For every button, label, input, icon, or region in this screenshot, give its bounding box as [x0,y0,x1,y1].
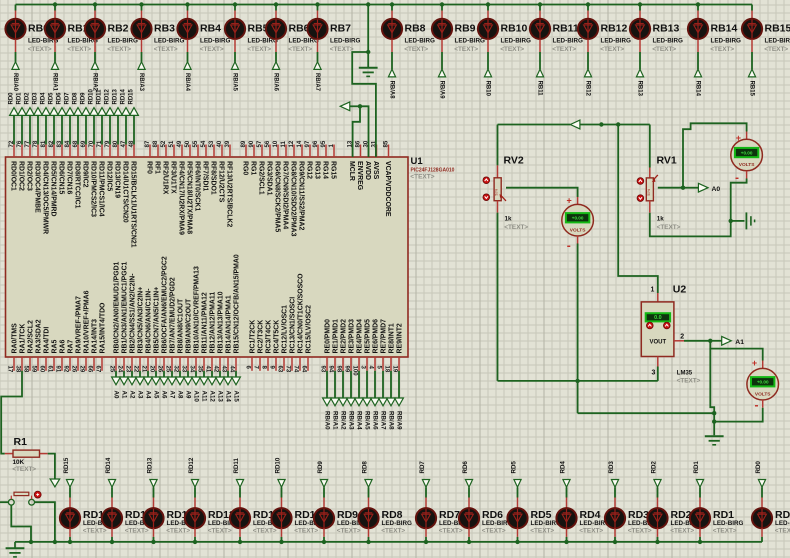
svg-text:ENVREG: ENVREG [356,161,363,190]
svg-text:RE2/PMD2: RE2/PMD2 [340,319,347,354]
svg-text:RB8: RB8 [405,22,426,34]
svg-text:14: 14 [296,140,303,147]
svg-text:42: 42 [213,366,220,373]
svg-text:78: 78 [32,140,39,147]
svg-text:<TEXT>: <TEXT> [657,224,681,231]
svg-text:A8: A8 [177,391,184,399]
svg-text:RF5/CN18/U2TX/PMA8: RF5/CN18/U2TX/PMA8 [186,161,193,234]
svg-text:24: 24 [117,366,124,373]
svg-text:RB/A3: RB/A3 [138,73,144,92]
svg-text:RA9/VREF-/PMA7: RA9/VREF-/PMA7 [75,296,82,354]
svg-text:RB2: RB2 [108,22,129,34]
svg-text:RD8/RTCC/IC1: RD8/RTCC/IC1 [74,161,81,209]
svg-text:<TEXT>: <TEXT> [410,174,434,181]
svg-text:25: 25 [165,366,172,373]
svg-text:LED-BIRG: LED-BIRG [108,37,139,44]
svg-text:67: 67 [95,366,102,373]
svg-text:79: 79 [104,140,111,147]
svg-text:50: 50 [184,140,191,147]
svg-text:VCAP/VDDCORE: VCAP/VDDCORE [384,161,391,217]
svg-text:+: + [567,196,572,206]
svg-text:<TEXT>: <TEXT> [652,46,676,53]
svg-text:RB/A8: RB/A8 [389,81,395,100]
svg-text:RV2: RV2 [504,155,524,167]
svg-text:RD10: RD10 [89,88,95,104]
svg-text:54: 54 [200,140,207,147]
svg-text:<TEXT>: <TEXT> [294,528,318,535]
svg-text:RC12/LV/OSC1: RC12/LV/OSC1 [281,305,288,354]
svg-text:RD0: RD0 [775,509,790,521]
svg-text:RF7/SDI1: RF7/SDI1 [202,161,209,191]
svg-text:20: 20 [149,366,156,373]
svg-text:RD10: RD10 [275,457,282,473]
svg-text:RB/A6: RB/A6 [273,73,279,92]
svg-text:RD5/CN14/PMRD: RD5/CN14/PMRD [50,161,57,217]
svg-text:96: 96 [312,140,319,147]
svg-text:RG6/CN8/SCK2/PMA5: RG6/CN8/SCK2/PMA5 [274,161,281,232]
svg-text:60: 60 [39,366,46,373]
svg-text:RF13/U2RTS/BCLK2: RF13/U2RTS/BCLK2 [226,161,233,227]
svg-text:21: 21 [141,366,148,373]
svg-text:<TEXT>: <TEXT> [710,46,734,53]
svg-text:47: 47 [120,140,127,147]
svg-text:<TEXT>: <TEXT> [125,528,149,535]
svg-text:-: - [755,398,759,412]
svg-text:+0.00: +0.00 [572,216,584,221]
svg-text:RB14/AN14/PMA1: RB14/AN14/PMA1 [225,295,232,353]
svg-text:RE7/PMD7: RE7/PMD7 [380,319,387,354]
svg-text:RD2: RD2 [651,461,658,474]
svg-text:<TEXT>: <TEXT> [208,528,232,535]
svg-text:83: 83 [56,140,63,147]
svg-text:95: 95 [320,140,327,147]
svg-text:LED-BIRG: LED-BIRG [775,520,790,527]
svg-text:RF6/INT0/SCK1: RF6/INT0/SCK1 [194,161,201,211]
svg-text:RG7/CN9/SDI2/PMA4: RG7/CN9/SDI2/PMA4 [282,161,289,229]
svg-text:RD0: RD0 [9,92,15,105]
svg-text:RB4/CN6/AN4/C1IN-: RB4/CN6/AN4/C1IN- [145,288,152,354]
svg-text:RG2/SCL1: RG2/SCL1 [258,161,265,195]
svg-text:RF1: RF1 [154,161,161,174]
svg-text:1k: 1k [505,215,513,222]
svg-text:LED-BIRG: LED-BIRG [653,37,684,44]
svg-text:LED-BIRG: LED-BIRG [553,37,584,44]
svg-text:50%: 50% [495,189,499,196]
svg-text:88: 88 [152,140,159,147]
svg-text:RA2/SCL2: RA2/SCL2 [27,320,34,353]
svg-text:RB6/OCFA/AN6/EMUC2/PGC2: RB6/OCFA/AN6/EMUC2/PGC2 [161,256,168,353]
svg-text:RD7: RD7 [439,509,460,521]
svg-text:<TEXT>: <TEXT> [288,46,312,53]
svg-text:RD3: RD3 [33,92,39,105]
svg-text:RE0/PMD0: RE0/PMD0 [324,319,331,354]
svg-text:RD12/IC5: RD12/IC5 [106,161,113,191]
svg-text:RB7: RB7 [330,22,351,34]
svg-text:RD7/CN16: RD7/CN16 [66,161,73,194]
svg-text:RB13/AN13/PMA10: RB13/AN13/PMA10 [217,291,224,353]
svg-text:RB14: RB14 [711,22,738,34]
svg-text:RG9/CN11/SS2/PMA2: RG9/CN11/SS2/PMA2 [298,161,305,230]
svg-text:<TEXT>: <TEXT> [200,46,224,53]
svg-text:VOUT: VOUT [649,339,666,345]
svg-text:RD4: RD4 [580,509,601,521]
svg-text:RA3/SDA2: RA3/SDA2 [35,319,42,353]
svg-text:RE4/PMD4: RE4/PMD4 [356,319,363,354]
svg-text:RB/A0: RB/A0 [324,411,331,430]
svg-text:90: 90 [248,140,255,147]
svg-text:99: 99 [344,366,351,373]
svg-text:<TEXT>: <TEXT> [713,528,737,535]
svg-text:RD14: RD14 [121,88,127,104]
svg-text:61: 61 [47,366,54,373]
svg-text:RE8/INT1: RE8/INT1 [388,323,395,353]
svg-text:82: 82 [48,140,55,147]
svg-text:RB13: RB13 [637,81,643,97]
svg-text:A4: A4 [145,391,152,399]
svg-text:RD4/CN13/OC5/PMWR: RD4/CN13/OC5/PMWR [42,161,49,234]
svg-text:22: 22 [133,366,140,373]
svg-text:+0.00: +0.00 [757,380,769,385]
svg-text:RB/A3: RB/A3 [348,411,355,430]
svg-text:<TEXT>: <TEXT> [579,528,603,535]
svg-text:LED-BIRG: LED-BIRG [501,37,532,44]
svg-text:1k: 1k [657,215,665,222]
svg-text:<TEXT>: <TEXT> [482,528,506,535]
svg-text:RF4/CN17/U2RX/PMA9: RF4/CN17/U2RX/PMA9 [178,161,185,235]
svg-text:LED-BIRG: LED-BIRG [455,37,486,44]
svg-text:RG14: RG14 [322,161,329,179]
svg-text:<TEXT>: <TEXT> [600,46,624,53]
svg-text:RB/A9: RB/A9 [396,411,403,430]
svg-text:RD7: RD7 [419,461,426,474]
svg-text:RD8: RD8 [362,461,369,474]
svg-text:RD10/PMCS2/IC3: RD10/PMCS2/IC3 [90,161,97,217]
svg-text:26: 26 [157,366,164,373]
svg-text:59: 59 [31,366,38,373]
svg-text:LED-BIRG: LED-BIRG [601,37,632,44]
svg-text:64: 64 [301,366,308,373]
svg-text:RD15/BCLK1/U1RTS/CN21: RD15/BCLK1/U1RTS/CN21 [130,161,137,248]
svg-text:34: 34 [189,366,196,373]
svg-text:RB10/AN10/CVREF/PMA13: RB10/AN10/CVREF/PMA13 [193,266,200,353]
svg-text:RB/A7: RB/A7 [314,73,320,92]
svg-text:RB5/CN7/AN5/C1IN+: RB5/CN7/AN5/C1IN+ [153,287,160,354]
svg-text:<TEXT>: <TEXT> [337,528,361,535]
svg-text:RB15/CN12/OCFB/AN15/PMA0: RB15/CN12/OCFB/AN15/PMA0 [233,254,240,353]
svg-text:<TEXT>: <TEXT> [530,528,554,535]
svg-text:RB12: RB12 [585,81,591,97]
svg-text:RD15: RD15 [129,88,135,104]
svg-text:RB4: RB4 [200,22,221,34]
svg-text:A12: A12 [209,391,216,403]
svg-text:<TEXT>: <TEXT> [500,46,524,53]
svg-text:2: 2 [680,333,684,340]
svg-text:RB9: RB9 [455,22,476,34]
svg-text:56: 56 [264,140,271,147]
svg-text:RD11: RD11 [97,89,103,105]
svg-text:RB15: RB15 [765,22,790,34]
svg-text:RC4/T5CK: RC4/T5CK [273,320,280,354]
svg-text:A0: A0 [712,186,721,193]
svg-text:AVSS: AVSS [372,161,379,180]
svg-text:RB11: RB11 [553,22,579,34]
svg-text:RB3: RB3 [154,22,175,34]
svg-text:RA5: RA5 [51,340,58,354]
svg-text:<TEXT>: <TEXT> [670,528,694,535]
svg-text:RD13: RD13 [113,88,119,104]
svg-text:R1: R1 [14,436,28,448]
svg-text:-: - [567,239,571,253]
svg-text:<TEXT>: <TEXT> [12,466,36,473]
svg-text:U1: U1 [411,156,424,167]
svg-text:55: 55 [192,140,199,147]
svg-text:86: 86 [354,140,361,147]
svg-text:RC14/CN0/T1CK/SOSCO: RC14/CN0/T1CK/SOSCO [297,273,304,354]
svg-text:RA14/INT3: RA14/INT3 [91,319,98,354]
svg-text:63: 63 [277,366,284,373]
svg-text:RD9/IC2: RD9/IC2 [82,161,89,188]
svg-text:+0.00: +0.00 [741,150,753,155]
svg-text:<TEXT>: <TEXT> [330,46,354,53]
svg-text:97: 97 [304,140,311,147]
svg-text:92: 92 [63,366,70,373]
svg-text:98: 98 [336,366,343,373]
svg-text:<TEXT>: <TEXT> [107,46,131,53]
svg-text:0.0: 0.0 [654,315,662,321]
svg-text:RD2: RD2 [25,92,31,105]
svg-text:<TEXT>: <TEXT> [253,528,277,535]
svg-text:RB/A1: RB/A1 [52,73,58,92]
svg-text:RB1/CN3/AN1/EMUC1/PGC1: RB1/CN3/AN1/EMUC1/PGC1 [121,261,128,353]
svg-text:1: 1 [651,287,655,294]
svg-text:57: 57 [256,140,263,147]
svg-text:1: 1 [328,144,335,148]
svg-text:RD1/OC2: RD1/OC2 [18,161,25,191]
svg-text:RB9/AN9/C2OUT: RB9/AN9/C2OUT [185,298,192,354]
svg-text:RG3/SDA1: RG3/SDA1 [266,161,273,196]
svg-text:A6: A6 [161,391,168,399]
svg-text:RD3: RD3 [628,509,649,521]
svg-text:66: 66 [87,366,94,373]
svg-text:71: 71 [96,140,103,147]
svg-text:A5: A5 [153,391,160,399]
svg-text:17: 17 [7,366,14,373]
svg-text:RB0/CN2/AN0/EMUD1/PGD1: RB0/CN2/AN0/EMUD1/PGD1 [113,261,120,353]
svg-text:LED-BIRG: LED-BIRG [154,37,185,44]
svg-text:<TEXT>: <TEXT> [552,46,576,53]
svg-text:10: 10 [272,140,279,147]
svg-text:RC2/T3CK: RC2/T3CK [257,320,264,354]
svg-text:48: 48 [128,140,135,147]
svg-text:RD8: RD8 [73,92,79,105]
svg-text:RG13: RG13 [314,161,321,179]
svg-text:RG8/CN10/SDO2/PMA3: RG8/CN10/SDO2/PMA3 [290,161,297,237]
svg-text:84: 84 [64,140,71,147]
svg-text:RV1: RV1 [657,155,677,167]
svg-text:RB14: RB14 [695,81,701,97]
svg-text:RC1/T2CK: RC1/T2CK [249,320,256,354]
svg-text:RD7: RD7 [65,92,71,105]
svg-text:100: 100 [352,366,359,377]
svg-text:RB13: RB13 [653,22,680,34]
svg-text:RB12: RB12 [601,22,628,34]
svg-text:72: 72 [8,140,15,147]
svg-text:LED-BIRG: LED-BIRG [382,520,413,527]
svg-text:RA4/TDI: RA4/TDI [43,327,50,354]
svg-text:70: 70 [88,140,95,147]
svg-text:<TEXT>: <TEXT> [454,46,478,53]
svg-text:RG1: RG1 [250,161,257,175]
svg-text:A9: A9 [185,391,192,399]
svg-text:33: 33 [181,366,188,373]
svg-text:41: 41 [205,366,212,373]
svg-text:89: 89 [240,140,247,147]
svg-text:RD2: RD2 [671,509,692,521]
svg-text:<TEXT>: <TEXT> [504,224,528,231]
svg-text:81: 81 [40,140,47,147]
svg-text:58: 58 [23,366,30,373]
svg-text:LED-BIRG: LED-BIRG [765,37,790,44]
svg-text:RB10: RB10 [485,81,491,97]
svg-text:RG0: RG0 [242,161,249,175]
svg-text:91: 91 [55,366,62,373]
svg-text:A3: A3 [137,391,144,399]
svg-text:RF2/U1RX: RF2/U1RX [162,161,169,195]
svg-text:10K: 10K [13,459,25,466]
svg-text:RD6: RD6 [462,461,469,474]
svg-text:RB15: RB15 [749,81,755,97]
svg-text:19: 19 [392,366,399,373]
svg-text:<TEXT>: <TEXT> [764,46,788,53]
svg-text:<TEXT>: <TEXT> [439,528,463,535]
svg-text:LED-BIRG: LED-BIRG [330,37,361,44]
svg-text:77: 77 [24,140,31,147]
svg-text:RE5/PMD5: RE5/PMD5 [364,319,371,354]
svg-text:RD13: RD13 [147,457,154,473]
svg-text:<TEXT>: <TEXT> [154,46,178,53]
svg-text:RD0/OC1: RD0/OC1 [10,161,17,191]
svg-text:39: 39 [224,140,231,147]
svg-text:50%: 50% [647,189,651,196]
svg-text:RE3/PMD3: RE3/PMD3 [348,319,355,354]
svg-text:RD8: RD8 [382,509,403,521]
svg-text:A10: A10 [193,391,200,403]
svg-text:85: 85 [382,140,389,147]
svg-text:44: 44 [229,366,236,373]
svg-text:RB3/CN5/AN3/C2IN+: RB3/CN5/AN3/C2IN+ [137,287,144,354]
svg-text:RD4: RD4 [41,92,47,105]
svg-text:RA0/TMS: RA0/TMS [11,323,18,354]
svg-text:52: 52 [160,140,167,147]
svg-text:VOLTS: VOLTS [755,391,771,397]
svg-text:RB8/AN8/C1OUT: RB8/AN8/C1OUT [177,298,184,354]
svg-text:RD1: RD1 [713,509,734,521]
svg-text:LED-BIRG: LED-BIRG [200,37,231,44]
svg-text:RA7: RA7 [67,340,74,354]
svg-text:29: 29 [79,366,86,373]
svg-text:32: 32 [173,366,180,373]
svg-text:RD3/OC4/PMBE: RD3/OC4/PMBE [34,161,41,213]
svg-text:RB12/AN12/PMA11: RB12/AN12/PMA11 [209,292,216,354]
svg-text:RD6/CN15: RD6/CN15 [58,161,65,194]
svg-text:12: 12 [288,140,295,147]
svg-text:RD9: RD9 [81,92,87,105]
svg-text:87: 87 [144,140,151,147]
svg-text:RB/A9: RB/A9 [439,81,445,100]
svg-text:RA1/TCK: RA1/TCK [19,324,26,354]
svg-text:RB/A8: RB/A8 [388,411,395,430]
svg-text:LED-BIRG: LED-BIRG [405,37,436,44]
svg-text:RB/A7: RB/A7 [380,411,387,430]
svg-text:A13: A13 [217,391,224,403]
svg-text:RB/A5: RB/A5 [364,411,371,430]
svg-text:RB/A4: RB/A4 [356,411,363,430]
svg-text:RD9: RD9 [317,461,324,474]
svg-text:RG15: RG15 [330,161,337,179]
svg-text:35: 35 [197,366,204,373]
svg-text:RB11: RB11 [537,81,543,97]
svg-text:RF3/U1TX: RF3/U1TX [170,161,177,194]
svg-text:RD6: RD6 [57,92,63,105]
svg-text:RD3: RD3 [608,461,615,474]
svg-text:26: 26 [71,366,78,373]
svg-text:RD13/CN19: RD13/CN19 [114,161,121,198]
svg-text:RD6: RD6 [482,509,503,521]
svg-text:LED-BIRG: LED-BIRG [711,37,742,44]
svg-text:25: 25 [109,366,116,373]
svg-text:43: 43 [221,366,228,373]
svg-text:11: 11 [280,140,287,147]
svg-text:<TEXT>: <TEXT> [247,46,271,53]
svg-text:23: 23 [125,366,132,373]
svg-text:RE9/INT2: RE9/INT2 [396,323,403,353]
svg-text:RB/A6: RB/A6 [372,411,379,430]
svg-text:51: 51 [168,140,175,147]
svg-text:RE6/PMD6: RE6/PMD6 [372,319,379,354]
svg-text:73: 73 [285,366,292,373]
svg-text:A14: A14 [225,391,232,403]
svg-text:+: + [752,358,757,368]
svg-text:RD14: RD14 [105,457,112,473]
svg-text:RF0: RF0 [146,161,153,174]
svg-text:RB/A2: RB/A2 [340,411,347,430]
svg-text:A7: A7 [169,391,176,399]
svg-text:RD4: RD4 [560,461,567,474]
svg-text:RD9: RD9 [337,509,358,521]
svg-text:38: 38 [15,366,22,373]
svg-text:RD15: RD15 [63,457,70,473]
svg-text:LED-BIRG: LED-BIRG [713,520,744,527]
svg-text:RD2/OC3: RD2/OC3 [26,161,33,191]
svg-text:RD0: RD0 [755,461,762,474]
svg-text:94: 94 [328,366,335,373]
svg-text:<TEXT>: <TEXT> [628,528,652,535]
svg-text:RD11/PMCS1/IC4: RD11/PMCS1/IC4 [98,161,105,217]
svg-text:A15: A15 [233,391,240,403]
svg-text:74: 74 [293,366,300,373]
svg-text:RB10: RB10 [501,22,528,34]
svg-text:A1: A1 [121,391,128,399]
svg-text:RD12: RD12 [105,88,111,104]
svg-text:MCLR: MCLR [348,161,355,181]
svg-text:<TEXT>: <TEXT> [775,528,790,535]
svg-text:<TEXT>: <TEXT> [677,377,701,384]
svg-text:A0: A0 [113,391,120,399]
svg-text:RF8/SDO1: RF8/SDO1 [210,161,217,195]
svg-text:RB/A5: RB/A5 [232,73,238,92]
svg-text:RD11: RD11 [233,457,240,473]
svg-text:RD14/U1CTS/CN20: RD14/U1CTS/CN20 [122,161,129,223]
